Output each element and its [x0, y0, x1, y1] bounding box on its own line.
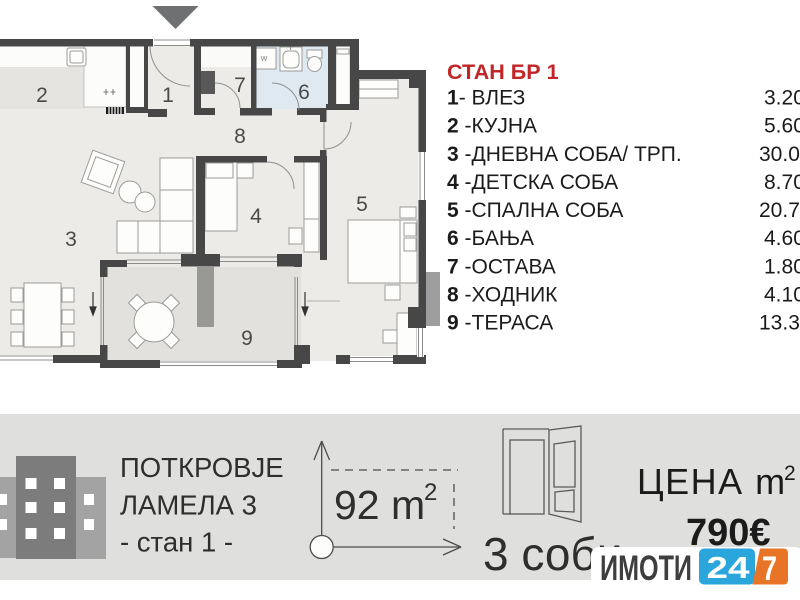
- svg-text:2: 2: [424, 479, 437, 506]
- svg-text:2: 2: [784, 462, 796, 485]
- svg-text:7 -ОСТАВА: 7 -ОСТАВА: [447, 255, 556, 278]
- svg-text:7: 7: [762, 550, 777, 588]
- svg-text:13.30: 13.30: [759, 312, 800, 335]
- svg-text:5 -СПАЛНА СОБА: 5 -СПАЛНА СОБА: [447, 199, 623, 222]
- svg-text:ПОТКРОВЈЕ: ПОТКРОВЈЕ: [120, 452, 284, 483]
- svg-text:4.10: 4.10: [764, 283, 800, 306]
- svg-text:4 -ДЕТСКА СОБА: 4 -ДЕТСКА СОБА: [447, 171, 618, 194]
- svg-text:4.60: 4.60: [764, 227, 800, 250]
- svg-text:СТАН БР 1: СТАН БР 1: [447, 60, 559, 84]
- svg-text:1: 1: [162, 84, 174, 107]
- svg-text:ЦЕНА m: ЦЕНА m: [637, 461, 787, 502]
- svg-text:7: 7: [234, 74, 246, 97]
- svg-text:3: 3: [65, 228, 77, 251]
- svg-text:ИМОТИ: ИМОТИ: [600, 549, 692, 588]
- svg-text:1- ВЛЕЗ: 1- ВЛЕЗ: [447, 87, 525, 110]
- svg-text:92 m: 92 m: [334, 482, 425, 528]
- svg-text:2: 2: [36, 84, 48, 107]
- svg-text:8: 8: [234, 125, 246, 148]
- svg-text:30.00: 30.00: [759, 143, 800, 166]
- svg-text:2 -КУЈНА: 2 -КУЈНА: [447, 115, 537, 138]
- svg-text:6 -БАЊА: 6 -БАЊА: [447, 227, 534, 250]
- svg-text:ЛАМЕЛА 3: ЛАМЕЛА 3: [120, 490, 257, 521]
- svg-text:w: w: [260, 53, 268, 63]
- svg-text:5: 5: [356, 193, 368, 216]
- svg-text:4: 4: [250, 205, 262, 228]
- svg-text:8 -ХОДНИК: 8 -ХОДНИК: [447, 283, 558, 306]
- svg-text:20.70: 20.70: [759, 199, 800, 222]
- svg-text:3.20: 3.20: [764, 87, 800, 110]
- svg-text:9 -ТЕРАСА: 9 -ТЕРАСА: [447, 312, 553, 335]
- svg-text:8.70: 8.70: [764, 171, 800, 194]
- svg-text:24: 24: [707, 550, 751, 585]
- svg-text:9: 9: [241, 327, 253, 350]
- svg-text:3 -ДНЕВНА СОБА/ ТРП.: 3 -ДНЕВНА СОБА/ ТРП.: [447, 143, 682, 166]
- svg-text:- стан 1 -: - стан 1 -: [120, 527, 233, 558]
- svg-text:6: 6: [298, 81, 310, 104]
- svg-text:5.60: 5.60: [764, 115, 800, 138]
- svg-text:1.80: 1.80: [764, 255, 800, 278]
